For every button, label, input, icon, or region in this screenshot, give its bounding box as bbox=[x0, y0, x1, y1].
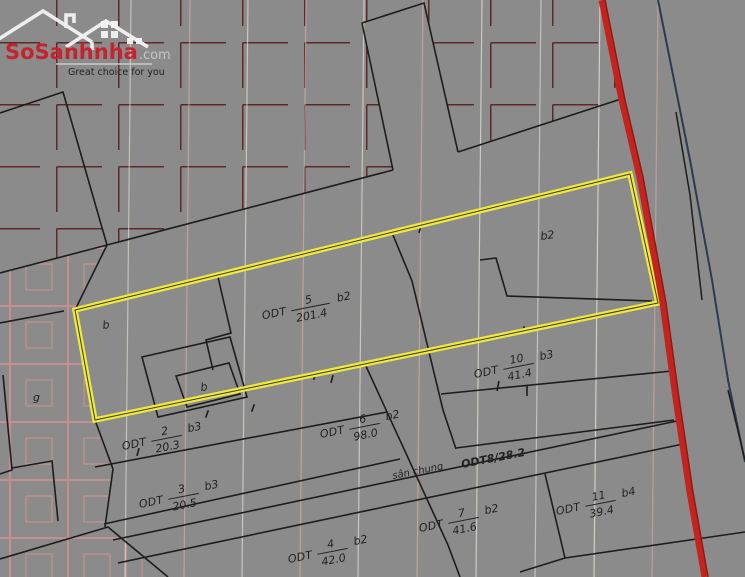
svg-text:b2: b2 bbox=[384, 408, 400, 423]
cadastral-map: ODT 5 201.4 b2 ODT 10 41.4 b3 ODT 2 20.3… bbox=[0, 0, 745, 577]
svg-text:11: 11 bbox=[591, 488, 607, 503]
svg-text:b3: b3 bbox=[538, 348, 554, 363]
svg-text:b3: b3 bbox=[186, 420, 202, 435]
zone-g-label: g bbox=[33, 391, 40, 404]
svg-text:b2: b2 bbox=[336, 289, 352, 304]
logo: SoSanhnha.com Great choice for you bbox=[0, 2, 170, 94]
svg-text:b4: b4 bbox=[620, 485, 636, 500]
svg-text:10: 10 bbox=[509, 351, 525, 366]
svg-text:b2: b2 bbox=[352, 533, 368, 548]
logo-tagline: Great choice for you bbox=[68, 67, 165, 78]
svg-text:b3: b3 bbox=[203, 478, 219, 493]
zone-b2-label: b2 bbox=[540, 228, 556, 243]
svg-text:b2: b2 bbox=[483, 502, 499, 517]
